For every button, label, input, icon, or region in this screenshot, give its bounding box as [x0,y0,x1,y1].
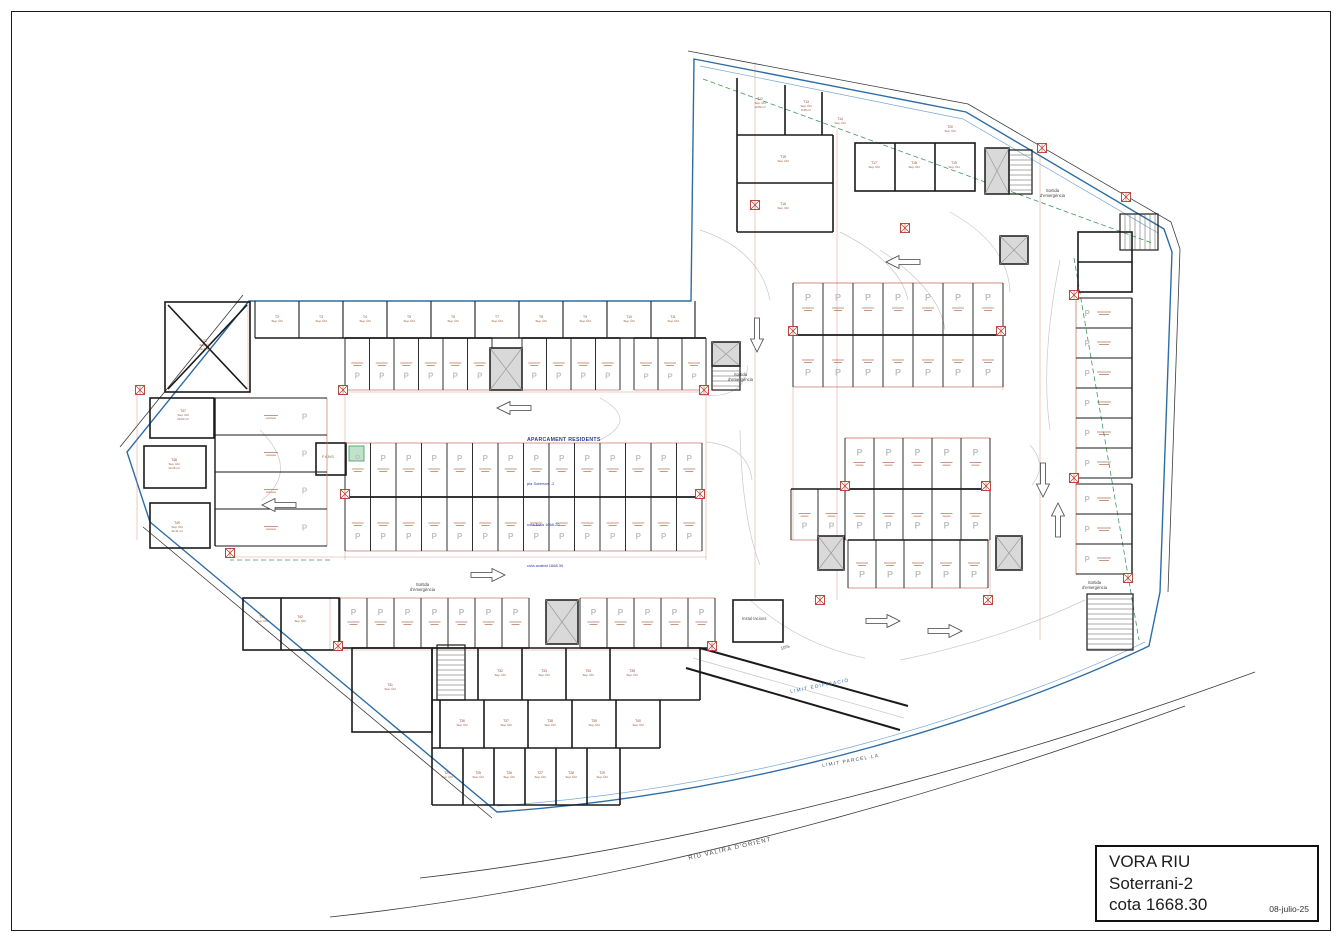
room-sublabel: Sup. Útil [448,319,459,323]
room-label: T9Sup. Útil [580,315,591,323]
p-marker: P [895,293,901,303]
p-marker: P [914,447,920,457]
room-sublabel: Sup. Útil [492,319,503,323]
room-label: T49Sup. Útil12.41 m² [171,521,183,533]
room-sublabel: Sup. Útil [624,319,635,323]
room-sublabel: Sup. Útil [360,319,371,323]
stair [712,366,740,390]
parking-stall: P [915,570,921,580]
direction-arrow-icon [866,615,900,628]
p-marker: P [802,521,808,531]
parking-stall: P [1085,459,1091,468]
room-sublabel: Sup. Útil [501,723,512,727]
parking-stall: P [895,293,901,303]
p-marker: P [381,454,387,463]
parking-stall: P [805,293,811,303]
room-label: T41Sup. Útil [257,615,268,623]
parking-stall: P [943,447,949,457]
p-marker: P [534,532,540,541]
p-marker: P [483,454,489,463]
room-label: T34Sup. Útil [583,669,594,677]
room-label: T4Sup. Útil [360,315,371,323]
p-marker: P [406,454,412,463]
room-area: 20.04 m² [177,417,188,421]
p-marker: P [687,454,693,463]
drive-lane-guide [740,430,760,565]
parking-stall: P [661,532,667,541]
room-label: T36Sup. Útil [457,719,468,727]
direction-arrow-icon [497,402,531,415]
parking-stall: P [672,607,678,617]
building-outline [127,59,1172,812]
room-sublabel: Sup. Útil [536,319,547,323]
room-label: T26Sup. Útil [504,771,515,779]
parking-stall: P [645,607,651,617]
room-label: T3Sup. Útil [316,315,327,323]
p-marker: P [835,367,841,377]
parking-stall: P [618,607,624,617]
room-sublabel: Sup. Útil [545,723,556,727]
parking-stall: P [406,532,412,541]
p-marker: P [829,521,835,531]
p-marker: P [687,532,693,541]
p-marker: P [699,607,705,617]
parking-stall: P [687,532,693,541]
p-marker: P [661,454,667,463]
parking-stall: P [895,367,901,377]
parking-stall: P [971,570,977,580]
room-sublabel: Sup. Útil [668,319,679,323]
elevation: cota 1668.30 [1109,894,1207,916]
room-sublabel: Sup. Útil [316,319,327,323]
parking-row: PPPPPPP [805,367,991,377]
parking-stall: P [887,570,893,580]
room-label: T40Sup. Útil [633,719,644,727]
parking-stall: P [428,371,433,380]
room-label: T37Sup. Útil [501,719,512,727]
parking-stall: P [1085,495,1091,504]
p-marker: P [1085,459,1091,468]
drive-lane-guide [750,600,865,658]
parking-stall: P [534,532,540,541]
ramp-lane [693,658,904,718]
parking-stall: P [379,371,384,380]
stair [1009,150,1032,194]
parking-stall: P [559,454,565,463]
room-sublabel: Sup. Útil [495,673,506,677]
room-sublabel: Sup. Útil [473,775,484,779]
p-marker: P [459,607,465,617]
room-sublabel: Sup. Útil [589,723,600,727]
room-label: T47Sup. Útil20.04 m² [177,409,189,421]
p-marker: P [405,607,411,617]
direction-arrow-icon [751,318,764,352]
p-marker: P [1085,339,1091,348]
room-label: T33Sup. Útil [539,669,550,677]
room-label: T24Sup. Útil [442,771,453,779]
parking-stall: P [667,371,672,380]
room-label: T20Sup. Útil [945,125,956,133]
p-marker: P [972,521,978,531]
p-marker: P [532,371,537,380]
room-sublabel: Sup. Útil [442,775,453,779]
parking-stall: P [453,371,458,380]
parking-stall: P [643,371,648,380]
room-wall [243,598,339,650]
room-sublabel: Sup. Útil [627,673,638,677]
room-area: 12.41 m² [171,529,182,533]
room-label: T25Sup. Útil [473,771,484,779]
direction-arrow-icon [928,625,962,638]
p-marker: P [636,454,642,463]
p-marker: P [636,532,642,541]
p-marker: P [805,293,811,303]
parking-stall: P [605,371,610,380]
room-label: T19Sup. Útil [949,161,960,169]
stair [1087,594,1133,650]
p-marker: P [559,532,565,541]
p-marker: P [661,532,667,541]
room-label: T17Sup. Útil [869,161,880,169]
parking-row: PPP [643,371,696,380]
p-marker: P [895,367,901,377]
room-label: T2Sup. Útil [272,315,283,323]
parking-stall: P [914,521,920,531]
parking-stall: P [687,454,693,463]
p-marker: P [457,532,463,541]
room-label: T27Sup. Útil [535,771,546,779]
parking-stall: P [856,521,862,531]
direction-arrow-icon [262,499,296,512]
p-marker: P [591,607,597,617]
ramp-wall [700,648,908,706]
parking-row: PPPPP [856,521,978,531]
room-sublabel: Sup. Útil [385,687,396,691]
parking-stall: P [404,371,409,380]
room-label: T42Sup. Útil [295,615,306,623]
p-marker: P [605,371,610,380]
drive-lane-guide [706,442,752,480]
parking-row: PPP [1085,495,1091,564]
p-marker: P [856,447,862,457]
parking-stall: P [636,454,642,463]
p-marker: P [859,570,865,580]
parking-stall: P [943,570,949,580]
direction-arrow-icon [1037,463,1050,497]
p-marker: P [378,607,384,617]
parking-stall: P [955,367,961,377]
parking-stall: P [1085,555,1091,564]
p-marker: P [381,532,387,541]
parking-stall: P [477,371,482,380]
p-marker: P [351,607,357,617]
p-marker: P [914,521,920,531]
p-marker: P [432,532,438,541]
room-label: T6Sup. Útil [448,315,459,323]
parking-stall: P [355,371,360,380]
parking-stall: P [381,454,387,463]
parking-stall: P [432,454,438,463]
p-marker: P [610,532,616,541]
parking-stall: P [835,293,841,303]
parking-stall: P [885,447,891,457]
room-label: T14Sup. Útil [835,117,846,125]
room-sublabel: Sup. Útil [457,723,468,727]
p-marker: P [885,521,891,531]
room-sublabel: Sup. Útil [869,165,880,169]
room-label: T35Sup. Útil [627,669,638,677]
drive-lane-guide [1030,445,1040,485]
parking-stall: P [508,454,514,463]
parking-stall: P [1085,309,1091,318]
room-sublabel: Sup. Útil [272,319,283,323]
room-area: 8.45 m² [801,108,811,112]
p-marker: P [508,532,514,541]
p-marker: P [513,607,519,617]
date: 08-julio-25 [1269,904,1309,914]
stair-box [1009,150,1032,194]
parking-stall: P [483,454,489,463]
room-label: T8Sup. Útil [536,315,547,323]
parking-stall: P [859,570,865,580]
parking-stall: P [457,532,463,541]
room-sublabel: Sup. Útil [778,206,789,210]
parking-stall: P [1085,429,1091,438]
p-marker: P [667,371,672,380]
room-label: T11Sup. Útil [668,315,679,323]
drawing-sheet: PPPPPPPPPPPPPPPPPPPPPPPPPPPPPPPPPPPPPPPP… [0,0,1341,941]
parking-stall: P [914,447,920,457]
p-marker: P [972,447,978,457]
level-name: Soterrani-2 [1109,873,1207,895]
room-label: T38Sup. Útil [545,719,556,727]
p-marker: P [302,524,308,533]
p-marker: P [457,454,463,463]
parking-stall: P [302,413,308,422]
p-marker: P [453,371,458,380]
p-marker: P [805,367,811,377]
p-marker: P [1085,429,1091,438]
p-marker: P [477,371,482,380]
room-sublabel: Sup. Útil [257,619,268,623]
project-name: VORA RIU [1109,851,1207,873]
p-marker: P [559,454,565,463]
parking-stall: P [610,532,616,541]
p-marker: P [618,607,624,617]
parking-stall: P [302,524,308,533]
p-marker: P [865,367,871,377]
p-marker: P [556,371,561,380]
p-marker: P [691,371,696,380]
room-label: T18Sup. Útil [909,161,920,169]
room-area: 13.26 m² [168,466,179,470]
parking-stall: P [805,367,811,377]
parking-row: PPPP [302,413,308,533]
parking-stall: P [661,454,667,463]
room-sublabel: Sup. Útil [909,165,920,169]
room-label: T28Sup. Útil [566,771,577,779]
parcel-boundary-line [120,295,243,447]
parcel-boundary-line [688,51,1180,592]
p-marker: P [643,371,648,380]
direction-arrow-icon [471,569,505,582]
room-label: T7Sup. Útil [492,315,503,323]
room-label: T29Sup. Útil [597,771,608,779]
parking-stall: P [486,607,492,617]
p-marker: P [355,371,360,380]
ramp-wall [686,668,900,730]
building-inner-line [700,66,1158,233]
parking-stall: P [972,521,978,531]
p-marker: P [985,293,991,303]
parking-stall: P [972,447,978,457]
p-marker: P [943,521,949,531]
parking-stall: P [885,521,891,531]
parking-stall: P [406,454,412,463]
p-marker: P [432,454,438,463]
room-label: T13Sup. Útil8.45 m² [801,100,812,112]
room-area: 12.84 m² [754,105,765,109]
parking-stall: P [829,521,835,531]
p-marker: P [943,447,949,457]
p-marker: P [1085,309,1091,318]
parking-stall: P [691,371,696,380]
parking-row: PPPPPP [1085,309,1091,468]
room-label: T32Sup. Útil [495,669,506,677]
parking-row: PPPPPPP [351,607,519,617]
parking-stall: P [432,532,438,541]
p-marker: P [887,570,893,580]
parking-stall: P [585,532,591,541]
parking-stall: P [351,607,357,617]
parking-stall: P [585,454,591,463]
parking-stall: P [302,450,308,459]
green-limit-line [703,79,1152,243]
p-marker: P [925,293,931,303]
parking-stall: P [355,454,361,463]
parking-stall: P [856,447,862,457]
room-label: T16Sup. Útil [778,202,789,210]
p-marker: P [432,607,438,617]
parcel-boundary-line [143,527,492,818]
room-label: T31Sup. Útil [385,683,396,691]
p-marker: P [1085,399,1091,408]
room-sublabel: Sup. Útil [295,619,306,623]
p-marker: P [585,454,591,463]
p-marker: P [865,293,871,303]
p-marker: P [483,532,489,541]
parking-stall: P [1085,399,1091,408]
parking-stall: P [636,532,642,541]
parking-stall: P [457,454,463,463]
p-marker: P [534,454,540,463]
p-marker: P [379,371,384,380]
p-marker: P [1085,555,1091,564]
room-sublabel: Sup. Útil [580,319,591,323]
p-marker: P [302,450,308,459]
p-marker: P [835,293,841,303]
p-marker: P [925,367,931,377]
p-marker: P [404,371,409,380]
p-marker: P [302,413,308,422]
title-block: VORA RIU Soterrani-2 cota 1668.30 08-jul… [1095,845,1319,922]
room-sublabel: Sup. Útil [404,319,415,323]
p-marker: P [355,532,361,541]
room-label: T15Sup. Útil [778,155,789,163]
parking-stall: P [513,607,519,617]
parking-stall: P [985,367,991,377]
parking-stall: P [378,607,384,617]
room-label: T48Sup. Útil13.26 m² [168,458,180,470]
parking-stall: P [610,454,616,463]
parking-stall: P [581,371,586,380]
parking-stall: P [802,521,808,531]
parcel-boundary-line [330,706,1185,917]
stair-box [1087,594,1133,650]
parking-row: PPPPP [859,570,977,580]
room-label: T12Sup. Útil12.84 m² [754,97,766,109]
room-sublabel: Sup. Útil [539,673,550,677]
room-sublabel: Sup. Útil [597,775,608,779]
p-marker: P [943,570,949,580]
stair-box [712,366,740,390]
p-marker: P [355,454,361,463]
parking-stall: P [381,532,387,541]
p-marker: P [645,607,651,617]
room-sublabel: Sup. Útil [504,775,515,779]
p-marker: P [885,447,891,457]
floor-plan-svg: PPPPPPPPPPPPPPPPPPPPPPPPPPPPPPPPPPPPPPPP… [0,0,1341,941]
room-sublabel: Sup. Útil [633,723,644,727]
p-marker: P [302,487,308,496]
room-label: T5Sup. Útil [404,315,415,323]
p-marker: P [915,570,921,580]
drive-lane-guide [1047,260,1060,430]
parking-stall: P [1085,369,1091,378]
parking-stall: P [865,293,871,303]
p-marker: P [406,532,412,541]
room-sublabel: Sup. Útil [566,775,577,779]
parking-stall: P [1085,525,1091,534]
p-marker: P [955,293,961,303]
parking-stall: P [591,607,597,617]
parking-stall: P [943,521,949,531]
p-marker: P [1085,525,1091,534]
parking-row: PPPPP [856,447,978,457]
parking-stall: P [1085,339,1091,348]
parking-stall: P [835,367,841,377]
stair [437,645,465,700]
stair-box [437,645,465,700]
p-marker: P [508,454,514,463]
room-sublabel: Sup. Útil [535,775,546,779]
room-wall [316,443,346,475]
parking-stall: P [534,454,540,463]
parking-stall: P [459,607,465,617]
parking-stall: P [405,607,411,617]
parking-stall: P [532,371,537,380]
p-marker: P [486,607,492,617]
parking-stall: P [699,607,705,617]
room-sublabel: Sup. Útil [778,159,789,163]
room-label: T10Sup. Útil [624,315,635,323]
room-sublabel: Sup. Útil [583,673,594,677]
p-marker: P [856,521,862,531]
room-wall [733,600,783,642]
parking-stall: P [865,367,871,377]
room-sublabel: Sup. Útil [945,129,956,133]
parking-stall: P [925,293,931,303]
